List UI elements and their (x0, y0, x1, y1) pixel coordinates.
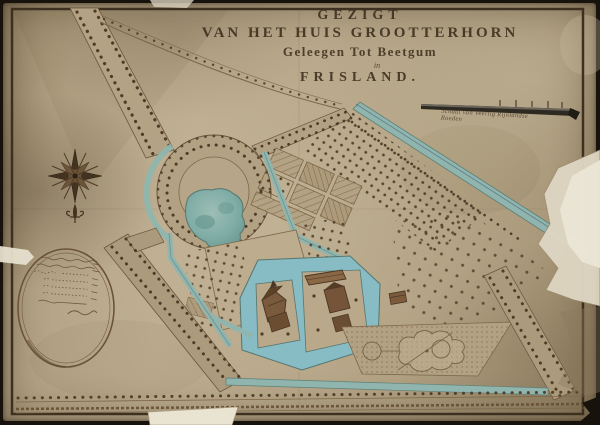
garden-pavilion (389, 291, 407, 305)
fleur-de-lis-icon (67, 205, 84, 223)
map-artwork (0, 0, 600, 425)
broderie-parterre (342, 322, 512, 376)
antique-map-photo: GEZIGT VAN HET HUIS GROOTTERHORN Geleege… (0, 0, 600, 425)
canal-bottom (226, 378, 548, 395)
